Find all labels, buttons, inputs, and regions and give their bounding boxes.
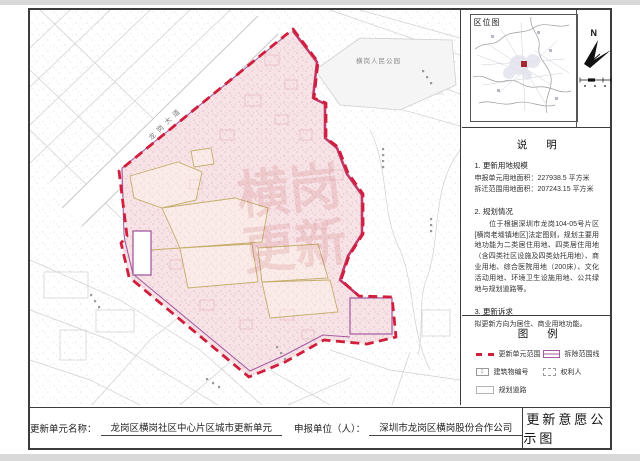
note-line-1a: 申报单元用地面积：227938.5 平方米 <box>475 174 600 185</box>
sheet-title: 更新意愿公示图 <box>523 408 610 449</box>
plan-sheet: 横岗人民公园 龙岗大道 <box>28 8 612 450</box>
rights-holder-swatch-icon <box>543 368 556 376</box>
note-heading-2: 2. 规划情况 <box>475 206 600 217</box>
unit-name-label: 更新单元名称： <box>30 421 97 435</box>
scale-bar <box>580 78 611 88</box>
note-line-1b: 拆迁范围用地面积：207243.15 平方米 <box>475 185 600 196</box>
note-heading-1: 1. 更新用地规模 <box>475 160 600 171</box>
building-number-swatch-icon: 1 <box>476 368 489 376</box>
title-bar-left: 更新单元名称： 龙岗区横岗社区中心片区城市更新单元 申报单位（人）： 深圳市龙岗… <box>30 408 523 449</box>
legend-grid: 更新单元范围 拆除范围线 1 建筑物编号 权利人 规划道路 <box>476 349 601 395</box>
main-map: 横岗人民公园 龙岗大道 <box>30 10 461 405</box>
north-arrow-icon <box>578 34 614 92</box>
title-bar: 更新单元名称： 龙岗区横岗社区中心片区城市更新单元 申报单位（人）： 深圳市龙岗… <box>30 407 610 449</box>
location-inset-svg <box>471 15 575 119</box>
notes-title: 说 明 <box>475 137 600 152</box>
note-heading-3: 3. 更新诉求 <box>475 306 600 317</box>
legend-label: 权利人 <box>561 367 582 377</box>
legend-item-planned-road: 规划道路 <box>476 385 541 395</box>
location-section: 区位图 N <box>462 10 611 128</box>
top-border-strip <box>0 0 640 5</box>
update-boundary-swatch-icon <box>476 353 494 356</box>
legend-label: 规划道路 <box>499 385 527 395</box>
north-column: N <box>576 10 611 127</box>
right-panel: 区位图 N 说 明 1. 更新用地规模 申报 <box>462 10 611 405</box>
applicant-label: 申报单位（人）： <box>294 421 365 435</box>
note-para-2: 位于根据深圳市龙岗104-05号片区[横岗老墟镇地区]法定图则，规划主要用地功能… <box>475 220 600 296</box>
watermark-line2: 更新 <box>240 213 350 282</box>
legend-item-building-number: 1 建筑物编号 <box>476 367 541 377</box>
planned-road-swatch-icon <box>476 386 494 394</box>
legend-label: 更新单元范围 <box>499 349 541 359</box>
applicant-value: 深圳市龙岗区横岗股份合作公司 <box>369 420 522 436</box>
legend-label: 建筑物编号 <box>494 367 529 377</box>
location-title: 区位图 <box>474 17 501 28</box>
location-inset-map: 区位图 <box>470 14 578 122</box>
legend-label: 拆除范围线 <box>565 349 600 359</box>
demolition-line-swatch-icon <box>543 350 560 358</box>
main-map-svg: 横岗人民公园 龙岗大道 <box>30 10 460 405</box>
park-label: 横岗人民公园 <box>356 56 401 65</box>
legend-item-rights-holder: 权利人 <box>543 367 601 377</box>
legend-section: 图 例 更新单元范围 拆除范围线 1 建筑物编号 权利人 <box>462 316 611 405</box>
watermark: 横岗 更新 <box>234 158 349 282</box>
legend-title: 图 例 <box>476 326 601 341</box>
notes-section: 说 明 1. 更新用地规模 申报单元用地面积：227938.5 平方米 拆迁范围… <box>462 128 611 316</box>
bottom-border-strip <box>0 454 640 461</box>
unit-name-value: 龙岗区横岗社区中心片区城市更新单元 <box>101 420 283 436</box>
legend-item-demolition-line: 拆除范围线 <box>543 349 601 359</box>
legend-item-update-boundary: 更新单元范围 <box>476 349 541 359</box>
site-marker <box>521 61 527 67</box>
